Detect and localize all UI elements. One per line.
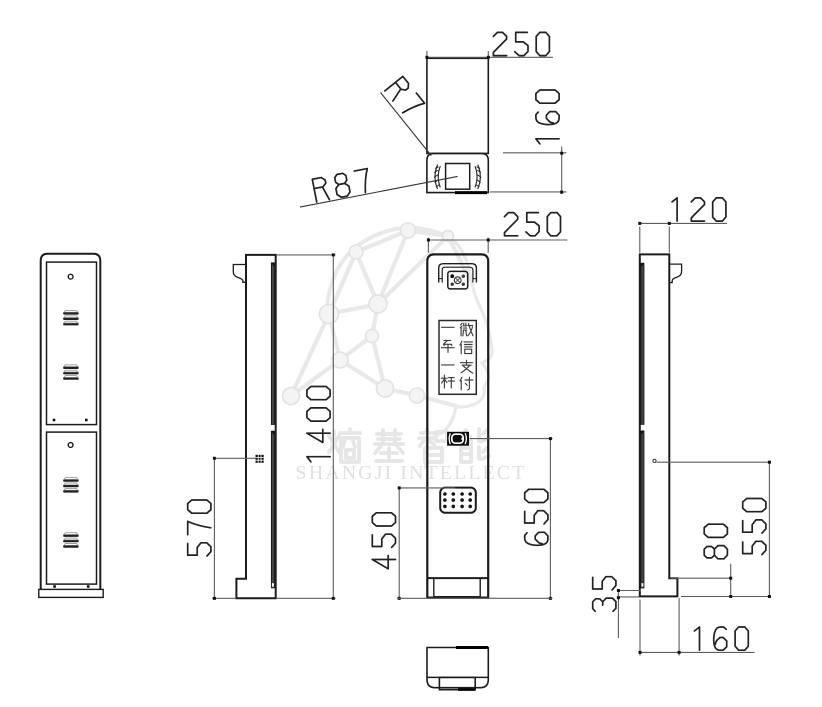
svg-text:SHANGJI INTELLECT: SHANGJI INTELLECT [296, 462, 527, 484]
